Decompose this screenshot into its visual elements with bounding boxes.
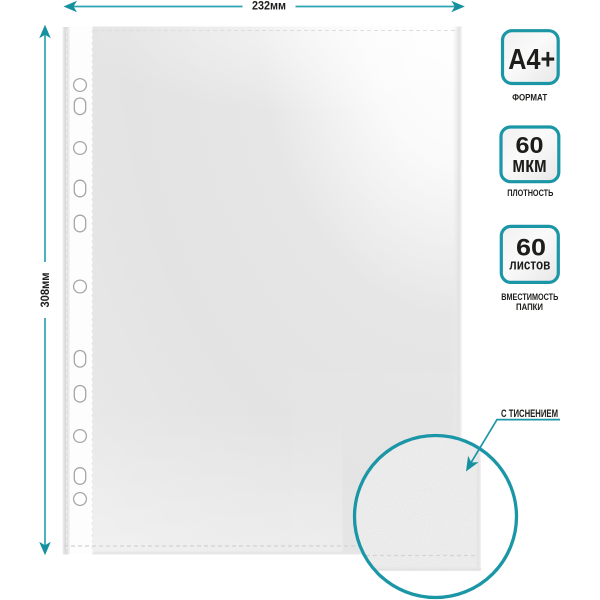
svg-text:листов: листов	[509, 257, 550, 274]
svg-text:ФОРМАТ: ФОРМАТ	[512, 93, 547, 104]
svg-text:мкм: мкм	[512, 152, 547, 177]
svg-text:A4+: A4+	[508, 44, 555, 76]
svg-text:232мм: 232мм	[252, 0, 286, 12]
svg-text:308мм: 308мм	[40, 273, 52, 308]
svg-text:ПАПКИ: ПАПКИ	[516, 302, 543, 313]
svg-text:ПЛОТНОСТЬ: ПЛОТНОСТЬ	[507, 188, 553, 199]
svg-text:С ТИСНЕНИЕМ: С ТИСНЕНИЕМ	[501, 408, 558, 420]
